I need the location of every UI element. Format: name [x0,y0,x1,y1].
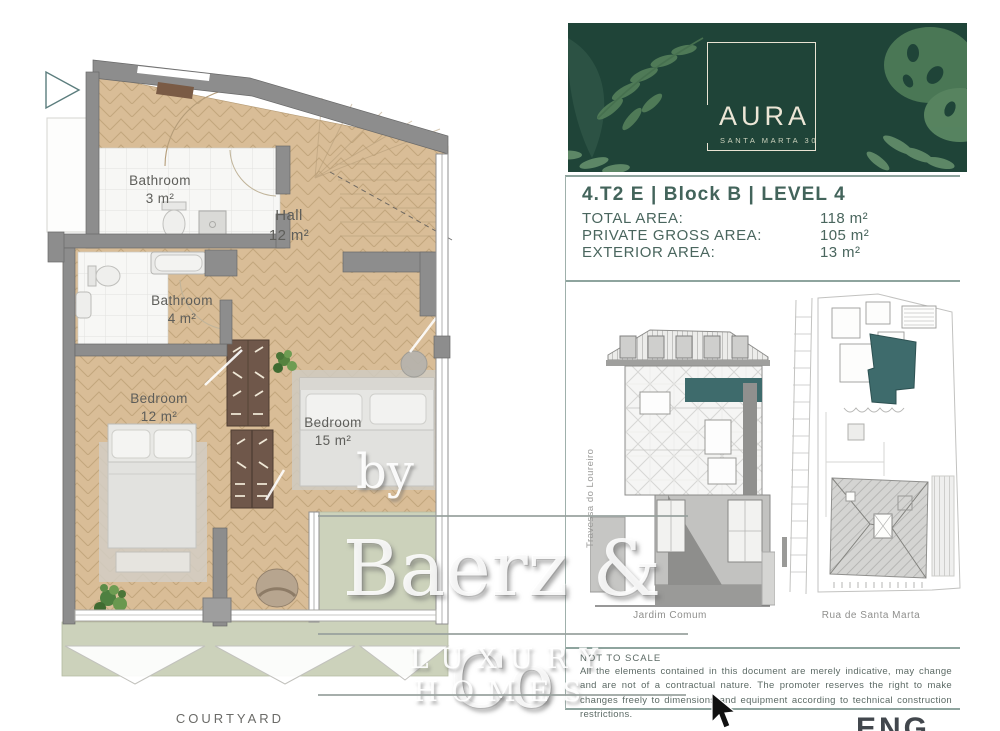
orientation-arrow-icon [46,72,79,108]
exterior-area-label: EXTERIOR AREA: [582,244,715,261]
exterior-area-value: 13 m² [820,244,860,261]
private-gross-area-value: 105 m² [820,227,869,244]
wardrobes [227,340,273,508]
aura-logo-subtitle: SANTA MARTA 30 [720,136,818,145]
unit-highlight-siteplan [868,334,916,404]
aura-logo-title: AURA [719,101,810,132]
street-label-travessa: Travessa do Loureiro [585,388,596,548]
total-area-label: TOTAL AREA: [582,210,683,227]
room-label-bathroom-3: Bathroom 3 m² [129,172,191,208]
total-area-value: 118 m² [820,210,868,227]
room-label-bedroom-12: Bedroom 12 m² [130,390,188,426]
site-plan-drawing [782,292,968,608]
room-label-hall: Hall 12 m² [269,206,309,247]
chair [256,569,298,607]
side-table [401,351,427,377]
siteplan-caption: Rua de Santa Marta [806,610,936,621]
unit-title: 4.T2 E | Block B | LEVEL 4 [582,184,846,206]
room-label-bathroom-4: Bathroom 4 m² [151,292,213,328]
private-gross-area-label: PRIVATE GROSS AREA: [582,227,762,244]
floor-plan-drawing [0,0,470,731]
bed-bedroom-12 [99,424,207,582]
partial-footer-logo: ENG [856,712,986,731]
courtyard-label: COURTYARD [130,711,330,726]
building-elevation-drawing [590,300,775,618]
elevation-caption: Jardim Comum [618,610,722,621]
courtyard-door-swings [65,646,448,684]
brand-header: AURA SANTA MARTA 30 [568,23,967,172]
mouse-cursor-icon [710,692,738,731]
disclaimer-heading: NOT TO SCALE [580,653,952,664]
floorplan-sheet: Bathroom 3 m² Hall 12 m² Bathroom 4 m² B… [0,0,1000,731]
aura-logo-frame: AURA SANTA MARTA 30 [707,42,816,151]
room-label-bedroom-15: Bedroom 15 m² [304,414,362,450]
